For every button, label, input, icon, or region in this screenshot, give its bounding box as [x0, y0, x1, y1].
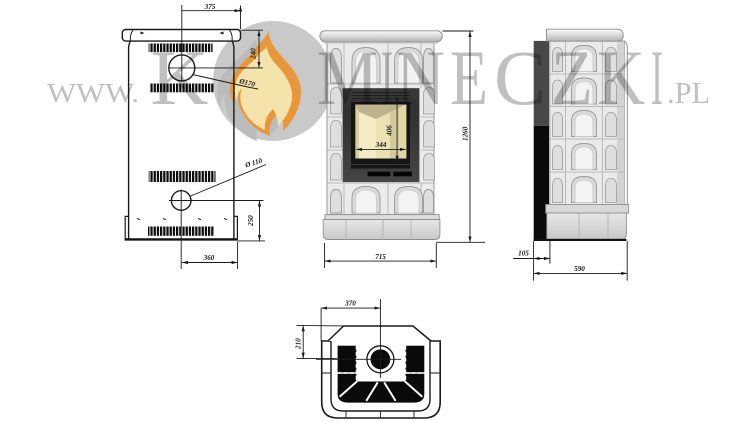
svg-text:M: M [317, 34, 378, 121]
svg-text:Z: Z [551, 34, 593, 121]
svg-text:E: E [450, 34, 488, 121]
svg-text:WWW.: WWW. [47, 78, 139, 108]
svg-text:I: I [381, 34, 393, 121]
svg-text:N: N [396, 34, 445, 121]
svg-text:K: K [597, 34, 645, 121]
svg-text:.PL: .PL [667, 75, 710, 110]
svg-text:K: K [151, 34, 209, 121]
svg-text:I: I [651, 34, 663, 121]
svg-text:C: C [494, 34, 546, 121]
